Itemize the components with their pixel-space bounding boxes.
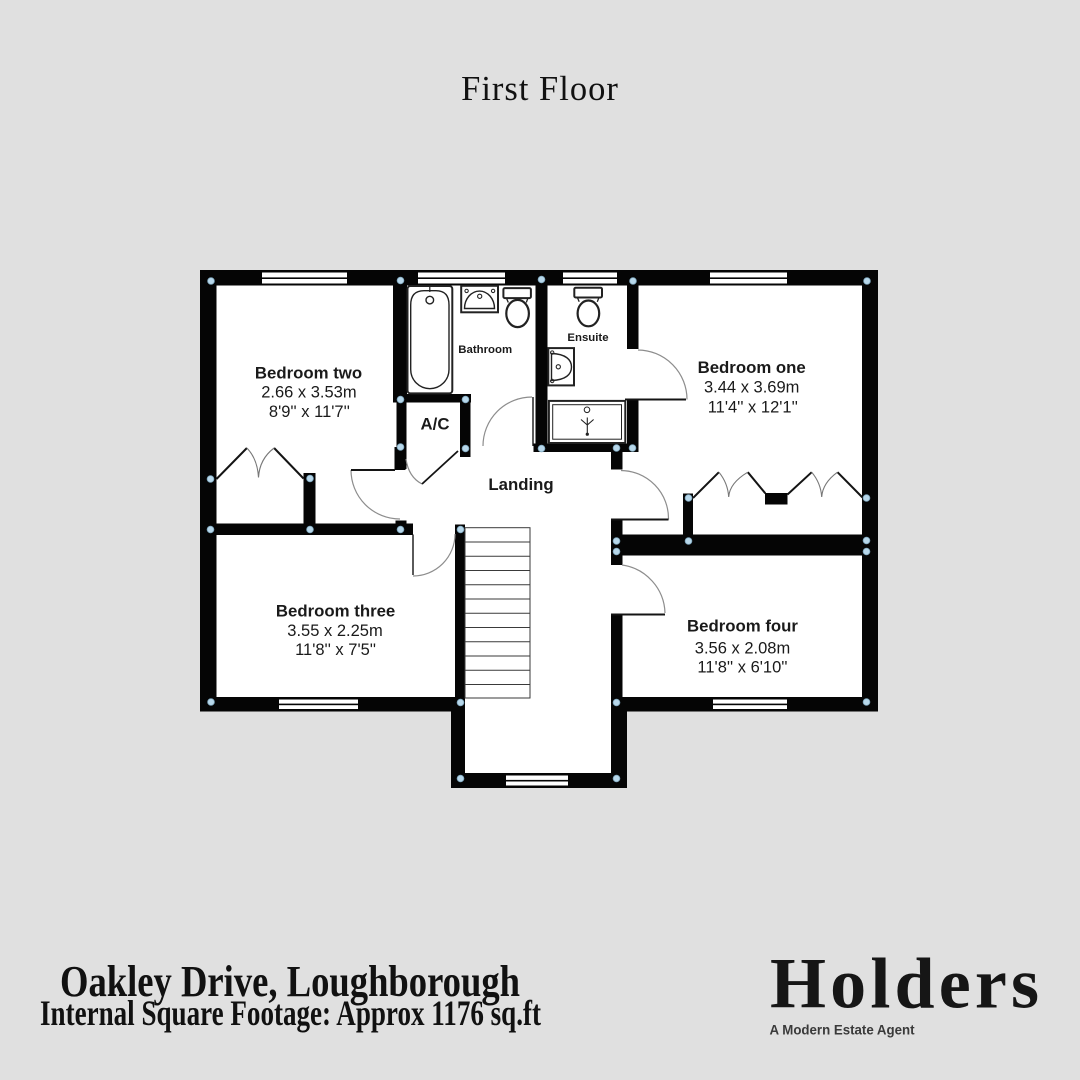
svg-text:Landing: Landing (488, 475, 553, 494)
svg-text:Bedroom three: Bedroom three (276, 602, 395, 621)
svg-text:Ensuite: Ensuite (567, 332, 608, 344)
svg-text:Internal Square Footage: Appro: Internal Square Footage: Approx 1176 sq.… (40, 993, 541, 1033)
svg-text:Bathroom: Bathroom (458, 344, 512, 356)
svg-text:3.44 x 3.69m: 3.44 x 3.69m (704, 379, 799, 397)
svg-text:First Floor: First Floor (461, 70, 619, 108)
svg-text:8'9'' x 11'7'': 8'9'' x 11'7'' (269, 403, 350, 421)
svg-text:A Modern Estate Agent: A Modern Estate Agent (770, 1022, 915, 1038)
svg-text:11'4'' x 12'1'': 11'4'' x 12'1'' (708, 399, 798, 417)
svg-text:Bedroom four: Bedroom four (687, 617, 798, 636)
svg-text:3.55 x 2.25m: 3.55 x 2.25m (287, 622, 382, 640)
svg-text:3.56 x 2.08m: 3.56 x 2.08m (695, 640, 790, 658)
svg-text:2.66 x 3.53m: 2.66 x 3.53m (261, 384, 356, 402)
svg-text:A/C: A/C (421, 415, 450, 434)
svg-text:11'8'' x 6'10'': 11'8'' x 6'10'' (697, 659, 787, 677)
svg-text:11'8'' x 7'5'': 11'8'' x 7'5'' (295, 641, 376, 659)
svg-text:Bedroom one: Bedroom one (698, 358, 806, 377)
svg-text:Bedroom two: Bedroom two (255, 364, 362, 383)
svg-text:Holders: Holders (770, 944, 1039, 1024)
